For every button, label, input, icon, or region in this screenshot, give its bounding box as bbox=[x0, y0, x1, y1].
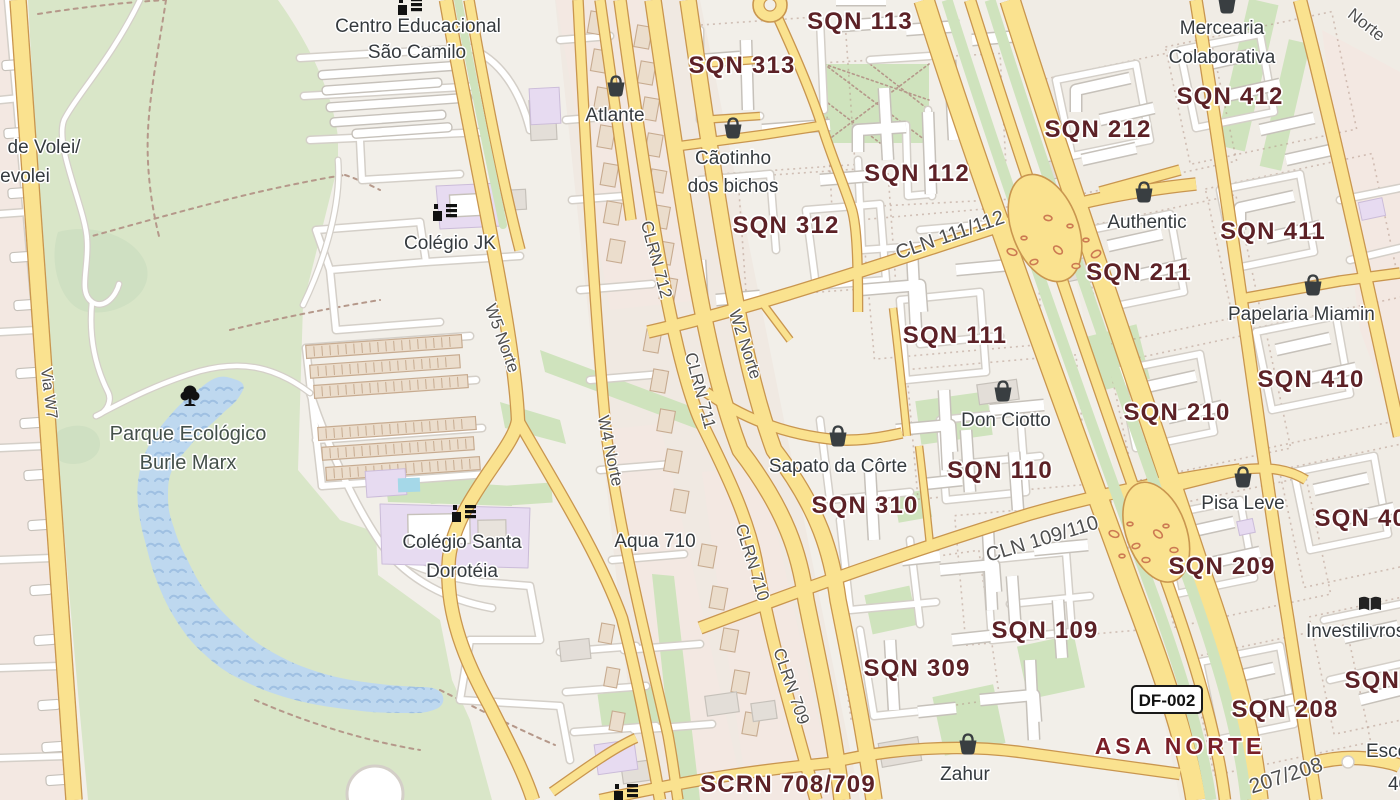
svg-text:SQN 412: SQN 412 bbox=[1176, 83, 1283, 110]
svg-text:SCRN 708/709: SCRN 708/709 bbox=[700, 771, 876, 798]
svg-text:São Camilo: São Camilo bbox=[368, 42, 466, 63]
svg-text:Cãotinho: Cãotinho bbox=[695, 148, 771, 169]
svg-text:ASA NORTE: ASA NORTE bbox=[1095, 733, 1266, 759]
svg-text:Zahur: Zahur bbox=[940, 764, 990, 785]
svg-text:Escola: Escola bbox=[1366, 741, 1400, 762]
svg-text:SQN 109: SQN 109 bbox=[991, 617, 1098, 644]
svg-text:Sapato da Côrte: Sapato da Côrte bbox=[769, 456, 907, 477]
svg-text:dos bichos: dos bichos bbox=[688, 176, 779, 197]
svg-text:SQN 310: SQN 310 bbox=[811, 492, 918, 519]
svg-text:evolei: evolei bbox=[0, 166, 50, 187]
svg-text:Pisa Leve: Pisa Leve bbox=[1201, 493, 1284, 514]
svg-text:407 No: 407 No bbox=[1388, 774, 1400, 795]
svg-text:SQN 208: SQN 208 bbox=[1231, 696, 1338, 723]
svg-text:SQN 411: SQN 411 bbox=[1220, 218, 1326, 245]
svg-text:Investilivros: Investilivros bbox=[1306, 621, 1400, 642]
svg-text:Colaborativa: Colaborativa bbox=[1169, 47, 1276, 68]
svg-text:SQN 313: SQN 313 bbox=[688, 52, 795, 79]
svg-text:SQN 111: SQN 111 bbox=[903, 322, 1007, 349]
svg-text:SQN 312: SQN 312 bbox=[732, 212, 839, 239]
svg-text:Burle Marx: Burle Marx bbox=[140, 452, 237, 474]
svg-text:DF-002: DF-002 bbox=[1139, 691, 1196, 710]
svg-text:SQN 309: SQN 309 bbox=[863, 655, 970, 682]
svg-text:Colégio Santa: Colégio Santa bbox=[402, 532, 522, 553]
svg-text:SQN 410: SQN 410 bbox=[1257, 366, 1364, 393]
svg-text:Papelaria Miamin: Papelaria Miamin bbox=[1228, 304, 1375, 325]
svg-text:SQN 210: SQN 210 bbox=[1123, 399, 1230, 426]
svg-text:Parque Ecológico: Parque Ecológico bbox=[110, 423, 267, 445]
svg-text:SQN 407: SQN 407 bbox=[1344, 667, 1400, 694]
svg-text:Aqua 710: Aqua 710 bbox=[614, 531, 695, 552]
svg-text:Don Ciotto: Don Ciotto bbox=[961, 410, 1051, 431]
svg-text:Centro Educacional: Centro Educacional bbox=[335, 16, 501, 37]
svg-text:SQN 110: SQN 110 bbox=[947, 457, 1053, 484]
svg-text:de Volei/: de Volei/ bbox=[8, 137, 82, 158]
svg-text:SQN 409: SQN 409 bbox=[1314, 505, 1400, 532]
svg-text:Colégio JK: Colégio JK bbox=[404, 233, 496, 254]
svg-text:SQN 209: SQN 209 bbox=[1168, 553, 1275, 580]
svg-text:Dorotéia: Dorotéia bbox=[426, 561, 498, 582]
svg-text:SQN 112: SQN 112 bbox=[864, 160, 970, 187]
svg-text:SQN 212: SQN 212 bbox=[1044, 116, 1151, 143]
svg-text:Authentic: Authentic bbox=[1107, 212, 1186, 233]
svg-text:Mercearia: Mercearia bbox=[1180, 18, 1265, 39]
svg-text:Atlante: Atlante bbox=[585, 105, 644, 126]
svg-text:SQN 113: SQN 113 bbox=[807, 8, 913, 35]
svg-text:SQN 211: SQN 211 bbox=[1086, 259, 1192, 286]
